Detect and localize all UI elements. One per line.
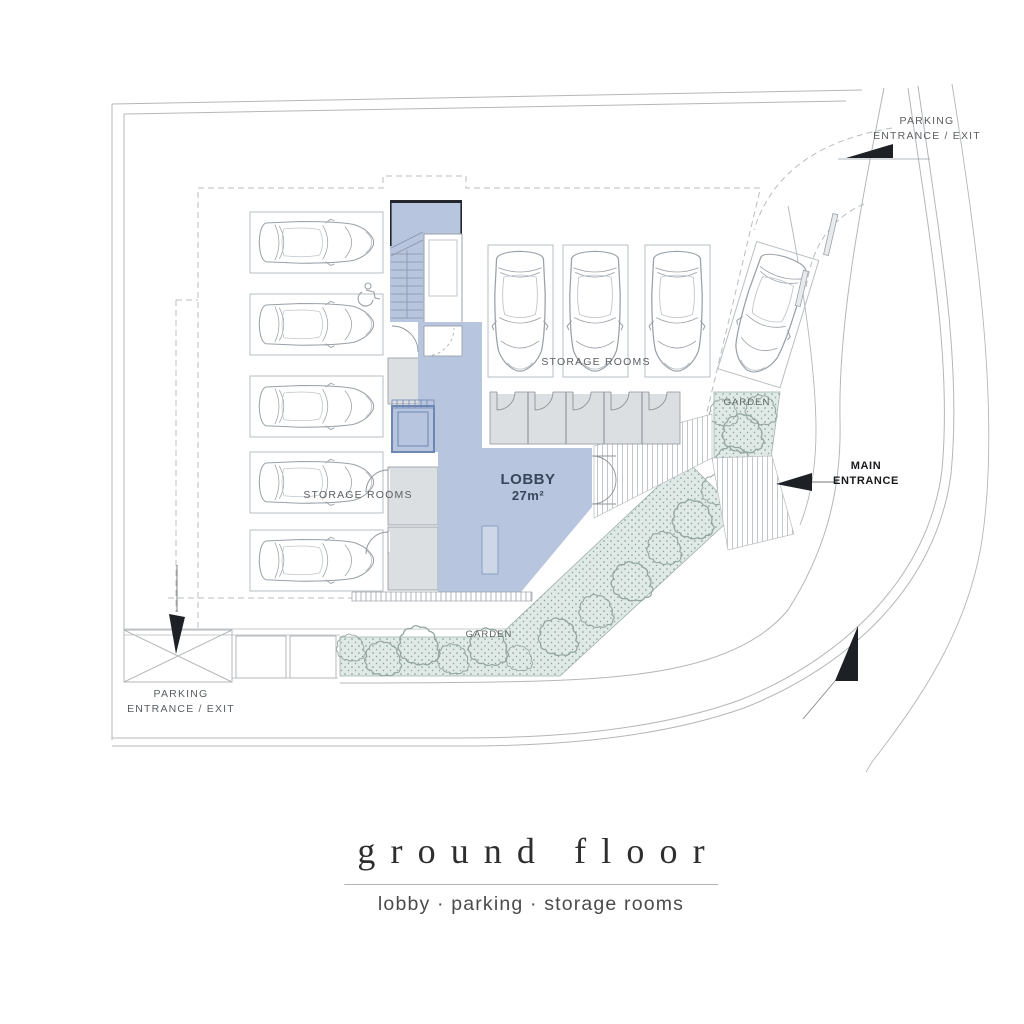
car-icon <box>259 219 373 265</box>
lobby-desk <box>482 526 498 574</box>
garden-bottom-label: GARDEN <box>449 628 529 641</box>
label-line: MAIN <box>851 460 882 472</box>
tilted-parking-stall <box>718 242 819 388</box>
label-line: PARKING <box>900 115 955 127</box>
car-icon <box>259 383 373 429</box>
storage-rooms-right-label: STORAGE ROOMS <box>526 355 666 370</box>
lobby-area-value: 27m² <box>478 488 578 503</box>
north-arrow-icon <box>803 626 858 719</box>
storage-rooms-left-label: STORAGE ROOMS <box>288 488 428 503</box>
label-line: STORAGE ROOMS <box>303 489 412 501</box>
car-icon <box>649 251 705 371</box>
label-line: GARDEN <box>466 629 513 640</box>
label-line: PARKING <box>154 688 209 700</box>
title-block: ground floor lobby · parking · storage r… <box>342 830 720 916</box>
title-divider <box>344 884 718 885</box>
label-line: ENTRANCE / EXIT <box>873 130 981 142</box>
label-line: ENTRANCE / EXIT <box>127 703 235 715</box>
page-subtitle: lobby · parking · storage rooms <box>342 893 720 916</box>
parking-entrance-top-label: PARKING ENTRANCE / EXIT <box>852 114 1002 143</box>
ramp-direction-arrow-icon <box>169 565 185 654</box>
parking-stalls-left <box>250 212 383 591</box>
car-icon <box>567 251 623 371</box>
elevator <box>424 234 462 326</box>
garden-right-label: GARDEN <box>712 396 782 409</box>
car-icon <box>259 537 373 583</box>
storage-rooms-right-block <box>490 390 680 444</box>
car-icon <box>492 251 548 371</box>
label-line: STORAGE ROOMS <box>541 356 650 368</box>
shaft <box>392 400 434 452</box>
floor-plan-sheet: PARKING ENTRANCE / EXIT MAIN ENTRANCE ST… <box>0 0 1024 1024</box>
car-icon <box>259 301 373 347</box>
lobby-label: LOBBY 27m² <box>478 471 578 503</box>
page-title: ground floor <box>342 830 720 872</box>
wheelchair-icon <box>358 283 380 306</box>
car-icon <box>724 249 812 380</box>
parking-entrance-bottom-label: PARKING ENTRANCE / EXIT <box>106 687 256 716</box>
label-line: GARDEN <box>724 397 771 408</box>
main-entrance-label: MAIN ENTRANCE <box>824 459 908 490</box>
lobby-name: LOBBY <box>478 471 578 488</box>
retaining-wall <box>352 592 532 601</box>
label-line: ENTRANCE <box>833 475 899 487</box>
